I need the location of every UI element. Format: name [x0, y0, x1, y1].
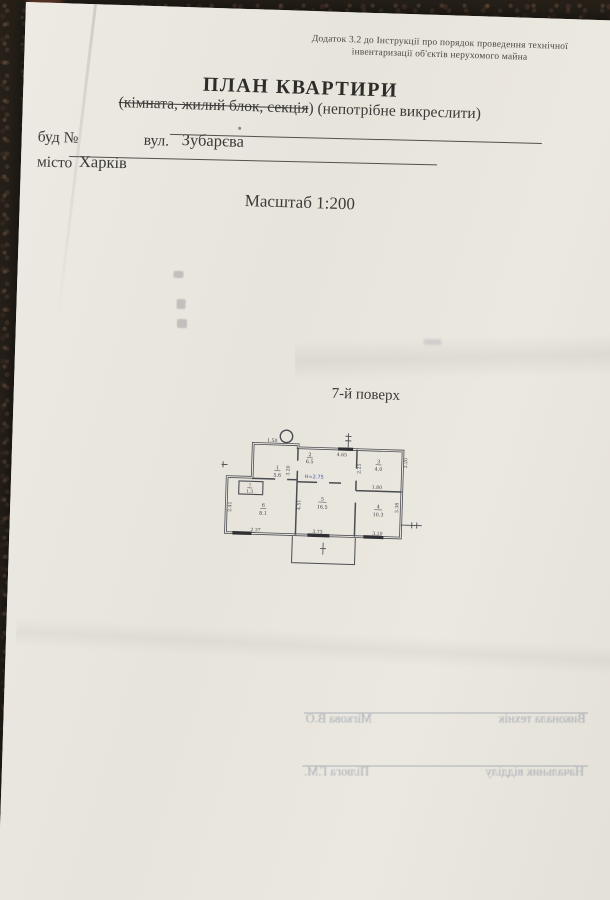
- dim-room3-right: 2.20: [403, 458, 409, 468]
- room-7-number: 7: [249, 483, 252, 488]
- appendix-reference: Додаток 3.2 до Інструкції про порядок пр…: [274, 32, 605, 66]
- room-4-number: 4: [377, 504, 380, 510]
- scale-label: Масштаб 1:200: [100, 186, 500, 219]
- street-label: вул.: [143, 132, 169, 151]
- dim-room5-width: 3.73: [312, 529, 322, 535]
- room-3-area: 4.0: [374, 467, 382, 473]
- pencil-smudge: [173, 271, 183, 278]
- bleedthrough-underline-1: [304, 713, 588, 714]
- bleedthrough-role-2: Начальник відділу: [485, 765, 584, 780]
- street-value: Зубарєва: [181, 130, 244, 152]
- scanned-page: Додаток 3.2 до Інструкції про порядок пр…: [0, 2, 610, 900]
- bleedthrough-line-1: Виконала технік Мігкова В.О: [306, 712, 586, 727]
- dim-room6-width: 2.37: [250, 527, 260, 533]
- city-value: Харків: [79, 152, 127, 173]
- ink-dot: [238, 127, 241, 130]
- vent-circle: [280, 430, 293, 443]
- dim-room5-vert: 4.51: [296, 500, 302, 510]
- dim-room3-vert: 2.25: [356, 463, 362, 473]
- room-4-area: 10.3: [373, 512, 384, 518]
- paper-crease: [295, 333, 610, 383]
- dim-room4-width: 3.10: [372, 531, 382, 537]
- room-6-area: 8.1: [259, 511, 267, 517]
- city-label: місто: [37, 153, 73, 172]
- bleedthrough-role-1: Виконала технік: [498, 712, 585, 727]
- floor-plan-drawing: 1 5.6 2 6.5 3 4.0 4 10.3 5 16.5 6: [216, 424, 435, 571]
- room-6-number: 6: [262, 503, 265, 509]
- dim-room1-top: 1.50: [267, 438, 277, 444]
- room-1-number: 1: [276, 465, 279, 471]
- dim-room4-right: 3.38: [394, 503, 400, 513]
- room-2-number: 2: [308, 452, 311, 458]
- ceiling-height-note: Н=2.75: [305, 474, 324, 481]
- building-number-label: буд №: [37, 128, 78, 147]
- room-2-area: 6.5: [306, 459, 314, 465]
- floor-plan: 1 5.6 2 6.5 3 4.0 4 10.3 5 16.5 6: [216, 424, 435, 571]
- paper-crease: [16, 617, 610, 676]
- bleedthrough-name-1: Мігкова В.О: [306, 712, 372, 727]
- scanned-document-photo: Додаток 3.2 до Інструкції про порядок пр…: [0, 0, 610, 900]
- bleedthrough-line-2: Начальник відділу Пілюга Г.М.: [304, 765, 584, 780]
- dim-room3-width: 1.80: [372, 485, 382, 491]
- room-labels: 1 5.6 2 6.5 3 4.0 4 10.3 5 16.5 6: [246, 450, 386, 520]
- faint-mark: [423, 339, 441, 346]
- room-3-number: 3: [377, 459, 380, 465]
- pencil-smudge: [176, 299, 185, 309]
- room-5-area: 16.5: [317, 504, 328, 510]
- bleedthrough-name-2: Пілюга Г.М.: [304, 765, 369, 780]
- room-7-area: 1.3: [246, 489, 253, 494]
- balcony-outline: [292, 536, 356, 564]
- dim-room6-vert: 2.41: [227, 501, 233, 511]
- room-1-area: 5.6: [273, 473, 281, 479]
- bleedthrough-underline-2: [302, 766, 588, 767]
- room-5-number: 5: [321, 497, 324, 503]
- dim-corridor-top: 4.65: [337, 452, 347, 458]
- floor-label: 7-й поверх: [296, 385, 436, 406]
- dim-room1-vert: 3.20: [285, 465, 291, 475]
- pencil-smudge: [177, 319, 187, 328]
